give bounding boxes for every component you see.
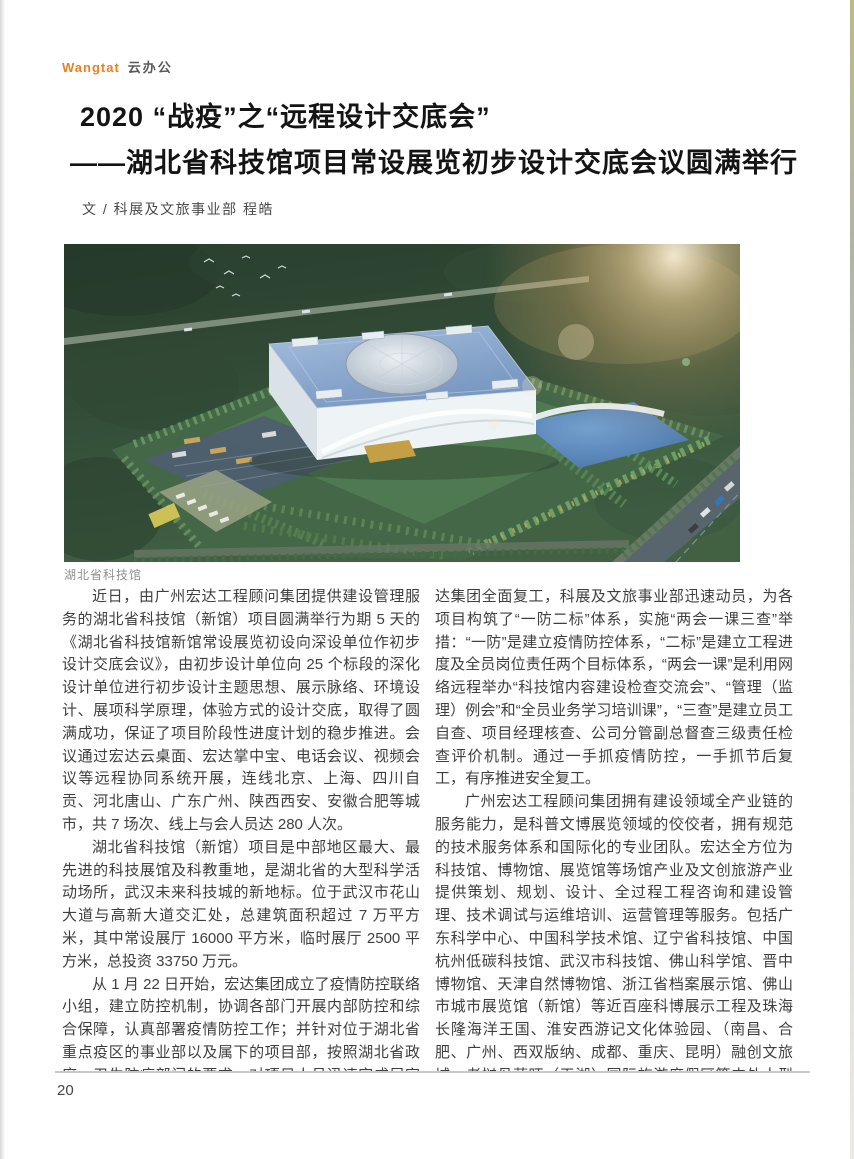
science-museum-aerial-render [64,244,740,562]
article-paragraph: 广州宏达工程顾问集团拥有建设领域全产业链的服务能力，是科普文博展览领域的佼佼者，… [435,791,793,1072]
brand-logo: Wangtat云办公 [62,57,173,76]
footer-rule [55,1071,810,1073]
magazine-page: { "brand": { "en": "Wangtat", "cn": "云办公… [0,0,854,1159]
article-title-line1: 2020 “战疫”之“远程设计交底会” [80,94,800,140]
article-paragraph: 达集团全面复工，科展及文旅事业部迅速动员，为各项目构筑了“一防二标”体系，实施“… [435,586,793,791]
article-title: 2020 “战疫”之“远程设计交底会” ——湖北省科技馆项目常设展览初步设计交底… [80,94,800,186]
article-paragraph: 湖北省科技馆（新馆）项目是中部地区最大、最先进的科技展馆及科教重地，是湖北省的大… [62,837,420,974]
article-column-right: 达集团全面复工，科展及文旅事业部迅速动员，为各项目构筑了“一防二标”体系，实施“… [435,586,793,1072]
article-body: 近日，由广州宏达工程顾问集团提供建设管理服务的湖北省科技馆（新馆）项目圆满举行为… [62,586,794,1072]
article-paragraph: 近日，由广州宏达工程顾问集团提供建设管理服务的湖北省科技馆（新馆）项目圆满举行为… [62,586,420,837]
page-scan-left-edge [0,0,5,1159]
brand-logo-cn: 云办公 [128,60,173,75]
page-scan-right-edge [850,0,854,1159]
article-column-left: 近日，由广州宏达工程顾问集团提供建设管理服务的湖北省科技馆（新馆）项目圆满举行为… [62,586,420,1072]
article-byline: 文 / 科展及文旅事业部 程皓 [82,199,274,219]
photo-caption: 湖北省科技馆 [64,566,142,583]
article-paragraph: 从 1 月 22 日开始，宏达集团成立了疫情防控联络小组，建立防控机制，协调各部… [62,974,420,1072]
article-title-line2: ——湖北省科技馆项目常设展览初步设计交底会议圆满举行 [70,140,800,186]
science-museum-aerial-photo [64,244,740,562]
brand-logo-en: Wangtat [62,60,120,75]
article-paragraph-text: 广州宏达工程顾问集团拥有建设领域全产业链的服务能力，是科普文博展览领域的佼佼者，… [435,793,793,1072]
page-number: 20 [57,1082,74,1099]
